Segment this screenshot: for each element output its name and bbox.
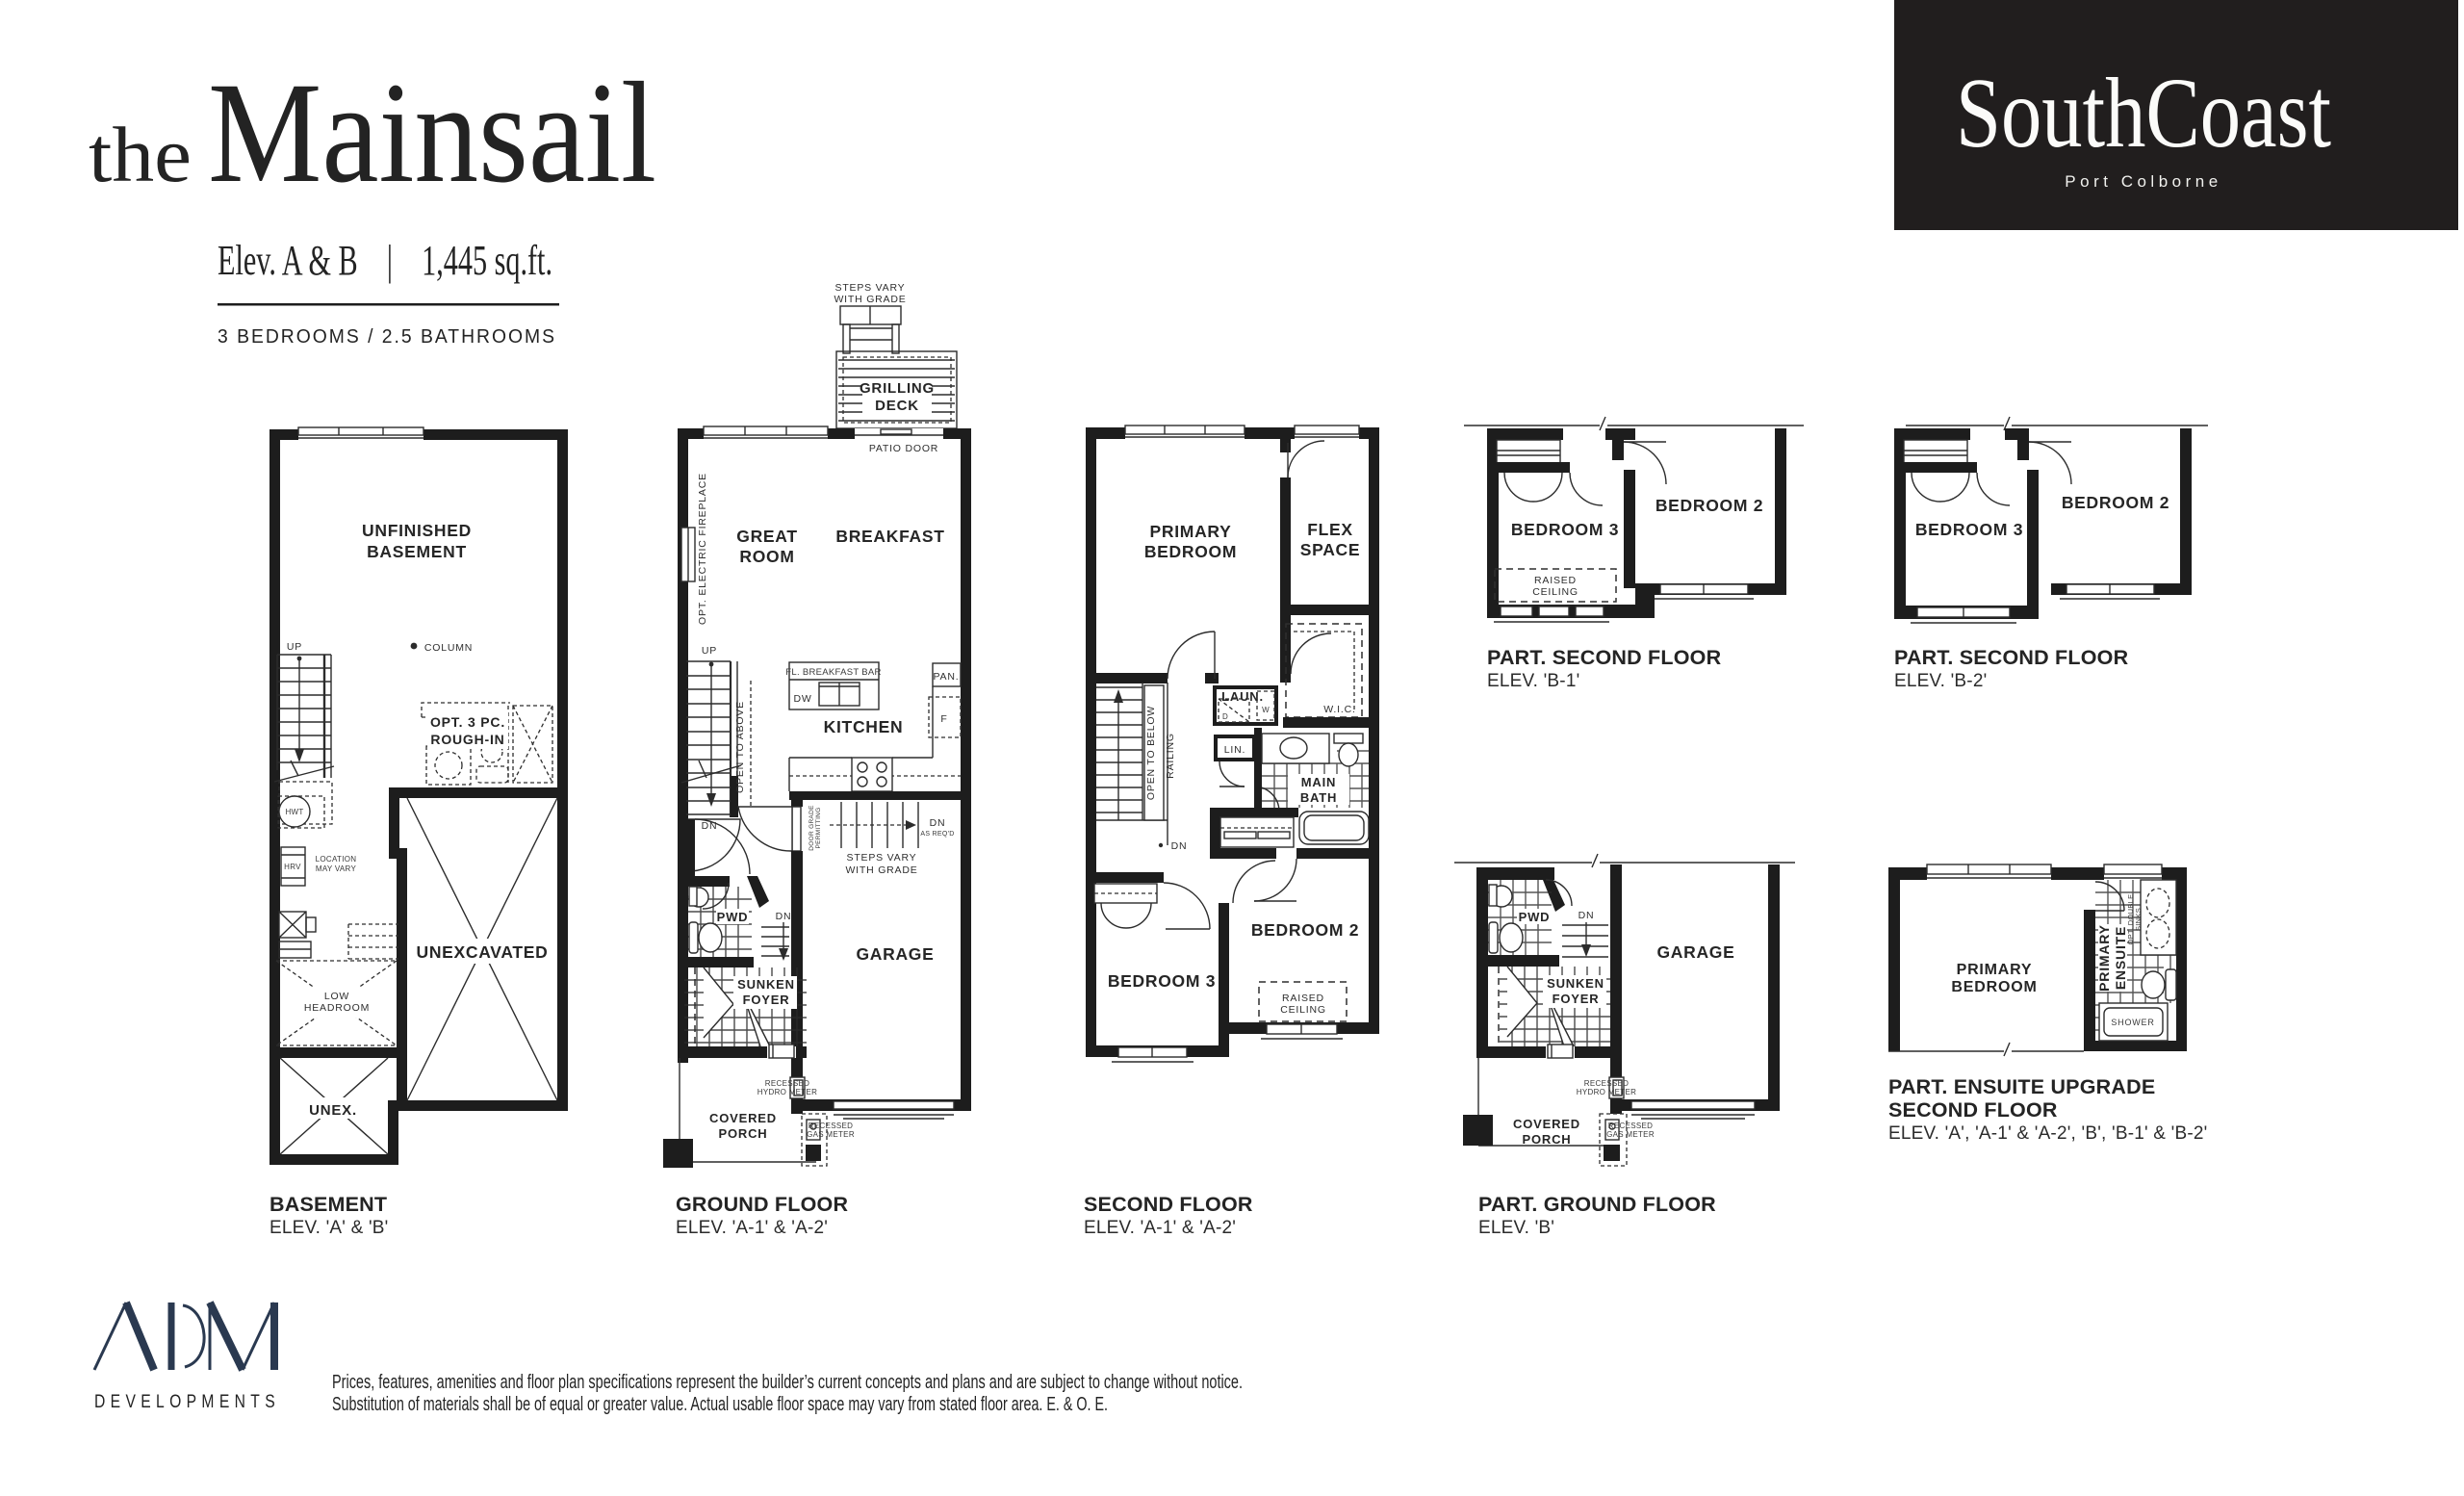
svg-text:the: the [89,111,192,198]
svg-text:COVERED: COVERED [1513,1117,1580,1131]
svg-text:ELEV. 'A-1' & 'A-2': ELEV. 'A-1' & 'A-2' [676,1218,828,1238]
svg-text:GAS METER: GAS METER [807,1130,855,1139]
svg-text:SUNKEN: SUNKEN [737,977,795,992]
svg-text:SPACE: SPACE [1300,540,1361,559]
svg-text:DN: DN [1578,910,1595,921]
svg-text:BASEMENT: BASEMENT [367,542,467,561]
svg-text:SHOWER: SHOWER [2111,1018,2154,1027]
svg-text:HYDRO METER: HYDRO METER [1577,1088,1636,1096]
svg-text:PWD: PWD [1519,910,1551,924]
svg-text:UNFINISHED: UNFINISHED [362,521,472,540]
svg-text:AS REQ'D: AS REQ'D [920,831,954,838]
svg-text:PRIMARY: PRIMARY [1150,522,1232,541]
svg-text:DN: DN [1171,840,1188,852]
svg-text:HYDRO METER: HYDRO METER [757,1088,817,1096]
svg-text:COVERED: COVERED [709,1111,777,1125]
svg-text:BREAKFAST: BREAKFAST [835,527,944,546]
svg-text:FL. BREAKFAST BAR: FL. BREAKFAST BAR [785,667,881,678]
svg-text:RAISED: RAISED [1534,575,1577,586]
svg-text:DEVELOPMENTS: DEVELOPMENTS [94,1392,280,1412]
svg-text:SouthCoast: SouthCoast [1956,58,2331,168]
svg-text:PATIO DOOR: PATIO DOOR [869,443,938,454]
svg-text:Substitution of materials shal: Substitution of materials shall be of eq… [332,1393,1108,1415]
svg-text:BASEMENT: BASEMENT [269,1193,387,1216]
svg-text:HWT: HWT [285,808,303,816]
svg-text:FOYER: FOYER [1553,992,1600,1006]
svg-text:SINKS: SINKS [2134,908,2143,931]
svg-text:PERMITTING: PERMITTING [815,807,822,848]
svg-text:DN: DN [776,911,792,922]
svg-text:GROUND FLOOR: GROUND FLOOR [676,1193,848,1216]
svg-text:BEDROOM: BEDROOM [1144,542,1237,561]
svg-text:UP: UP [702,645,717,657]
svg-text:RECESSED: RECESSED [765,1079,809,1088]
svg-text:PORCH: PORCH [719,1126,768,1141]
svg-text:Prices, features, amenities an: Prices, features, amenities and floor pl… [332,1371,1243,1393]
svg-text:PART. SECOND FLOOR: PART. SECOND FLOOR [1894,646,2129,669]
svg-text:DN: DN [930,817,946,829]
svg-text:PART. ENSUITE UPGRADE: PART. ENSUITE UPGRADE [1888,1075,2155,1098]
svg-text:SUNKEN: SUNKEN [1547,976,1604,991]
svg-text:RAILING: RAILING [1165,733,1176,779]
svg-text:LIN.: LIN. [1224,744,1245,756]
svg-text:FLEX: FLEX [1307,520,1353,539]
svg-text:RECESSED: RECESSED [808,1122,853,1130]
svg-text:UNEXCAVATED: UNEXCAVATED [416,942,548,962]
svg-text:WITH GRADE: WITH GRADE [834,294,906,305]
svg-text:GRILLING: GRILLING [860,380,935,397]
svg-text:FOYER: FOYER [743,993,790,1007]
svg-text:ROOM: ROOM [739,547,794,566]
svg-text:GARAGE: GARAGE [1656,942,1734,962]
svg-text:ELEV. 'A', 'A-1' & 'A-2', 'B',: ELEV. 'A', 'A-1' & 'A-2', 'B', 'B-1' & '… [1888,1123,2207,1144]
svg-text:Elev. A & B | 1,445 sq.ft.: Elev. A & B | 1,445 sq.ft. [218,237,552,284]
svg-text:HEADROOM: HEADROOM [304,1002,370,1014]
svg-text:SECOND FLOOR: SECOND FLOOR [1084,1193,1253,1216]
svg-text:ENSUITE: ENSUITE [2113,926,2128,990]
svg-text:UNEX.: UNEX. [309,1102,357,1119]
svg-text:BATH: BATH [1300,790,1337,805]
svg-text:Mainsail: Mainsail [208,53,656,213]
svg-text:3 BEDROOMS / 2.5 BATHROOMS: 3 BEDROOMS / 2.5 BATHROOMS [218,325,556,348]
svg-text:RAISED: RAISED [1282,993,1324,1004]
svg-text:OPT. ELECTRIC FIREPLACE: OPT. ELECTRIC FIREPLACE [697,473,708,625]
svg-text:STEPS VARY: STEPS VARY [847,852,917,864]
svg-text:OPT. 3 PC.: OPT. 3 PC. [430,714,505,730]
svg-text:PAN.: PAN. [934,671,960,683]
svg-text:DN: DN [702,820,718,832]
svg-text:BEDROOM 2: BEDROOM 2 [1655,496,1763,515]
svg-text:ELEV. 'B-2': ELEV. 'B-2' [1894,671,1987,691]
svg-text:ELEV. 'B': ELEV. 'B' [1478,1218,1554,1238]
svg-text:RECESSED: RECESSED [1584,1079,1629,1088]
svg-text:W: W [1262,706,1270,714]
svg-text:SECOND FLOOR: SECOND FLOOR [1888,1098,2058,1122]
svg-text:BEDROOM 3: BEDROOM 3 [1915,520,2023,539]
svg-text:CEILING: CEILING [1280,1004,1326,1016]
svg-text:RECESSED: RECESSED [1608,1122,1653,1130]
svg-text:W.I.C.: W.I.C. [1323,704,1355,715]
svg-text:OPEN TO ABOVE: OPEN TO ABOVE [734,701,746,793]
svg-text:BEDROOM 2: BEDROOM 2 [1251,920,1359,940]
svg-text:BEDROOM 2: BEDROOM 2 [2062,493,2169,512]
svg-text:GREAT: GREAT [736,527,797,546]
svg-text:GAS METER: GAS METER [1606,1130,1655,1139]
svg-text:ELEV. 'A' & 'B': ELEV. 'A' & 'B' [269,1218,389,1238]
svg-text:KITCHEN: KITCHEN [824,717,904,736]
svg-text:Port Colborne: Port Colborne [2065,172,2221,191]
svg-text:MAY VARY: MAY VARY [316,864,357,873]
svg-text:ROUGH-IN: ROUGH-IN [430,732,504,747]
svg-text:PRIMARY: PRIMARY [1957,962,2033,978]
svg-text:LOCATION: LOCATION [316,855,357,864]
svg-text:DW: DW [793,693,811,705]
svg-text:PWD: PWD [717,910,749,924]
svg-text:LOW: LOW [324,991,349,1002]
svg-text:CEILING: CEILING [1532,586,1578,598]
svg-text:BEDROOM 3: BEDROOM 3 [1108,971,1216,991]
svg-text:OPEN TO BELOW: OPEN TO BELOW [1145,706,1157,800]
svg-text:DECK: DECK [875,398,919,414]
svg-text:D: D [1222,712,1228,721]
svg-text:PORCH: PORCH [1523,1132,1572,1147]
svg-text:ELEV. 'A-1' & 'A-2': ELEV. 'A-1' & 'A-2' [1084,1218,1236,1238]
svg-text:HRV: HRV [284,863,301,871]
svg-text:PART. SECOND FLOOR: PART. SECOND FLOOR [1487,646,1722,669]
svg-text:STEPS VARY: STEPS VARY [835,282,906,294]
svg-text:BEDROOM: BEDROOM [1951,979,2037,995]
svg-text:UP: UP [287,641,302,653]
svg-text:MAIN: MAIN [1301,775,1336,789]
svg-text:F: F [940,713,947,725]
svg-text:GARAGE: GARAGE [856,944,934,964]
svg-text:PART. GROUND FLOOR: PART. GROUND FLOOR [1478,1193,1716,1216]
svg-text:BEDROOM 3: BEDROOM 3 [1511,520,1619,539]
svg-text:DOOR GRADE: DOOR GRADE [808,805,815,851]
svg-text:COLUMN: COLUMN [424,642,473,654]
svg-text:ELEV. 'B-1': ELEV. 'B-1' [1487,671,1579,691]
svg-text:WITH GRADE: WITH GRADE [845,864,917,876]
svg-text:PRIMARY: PRIMARY [2096,924,2112,992]
